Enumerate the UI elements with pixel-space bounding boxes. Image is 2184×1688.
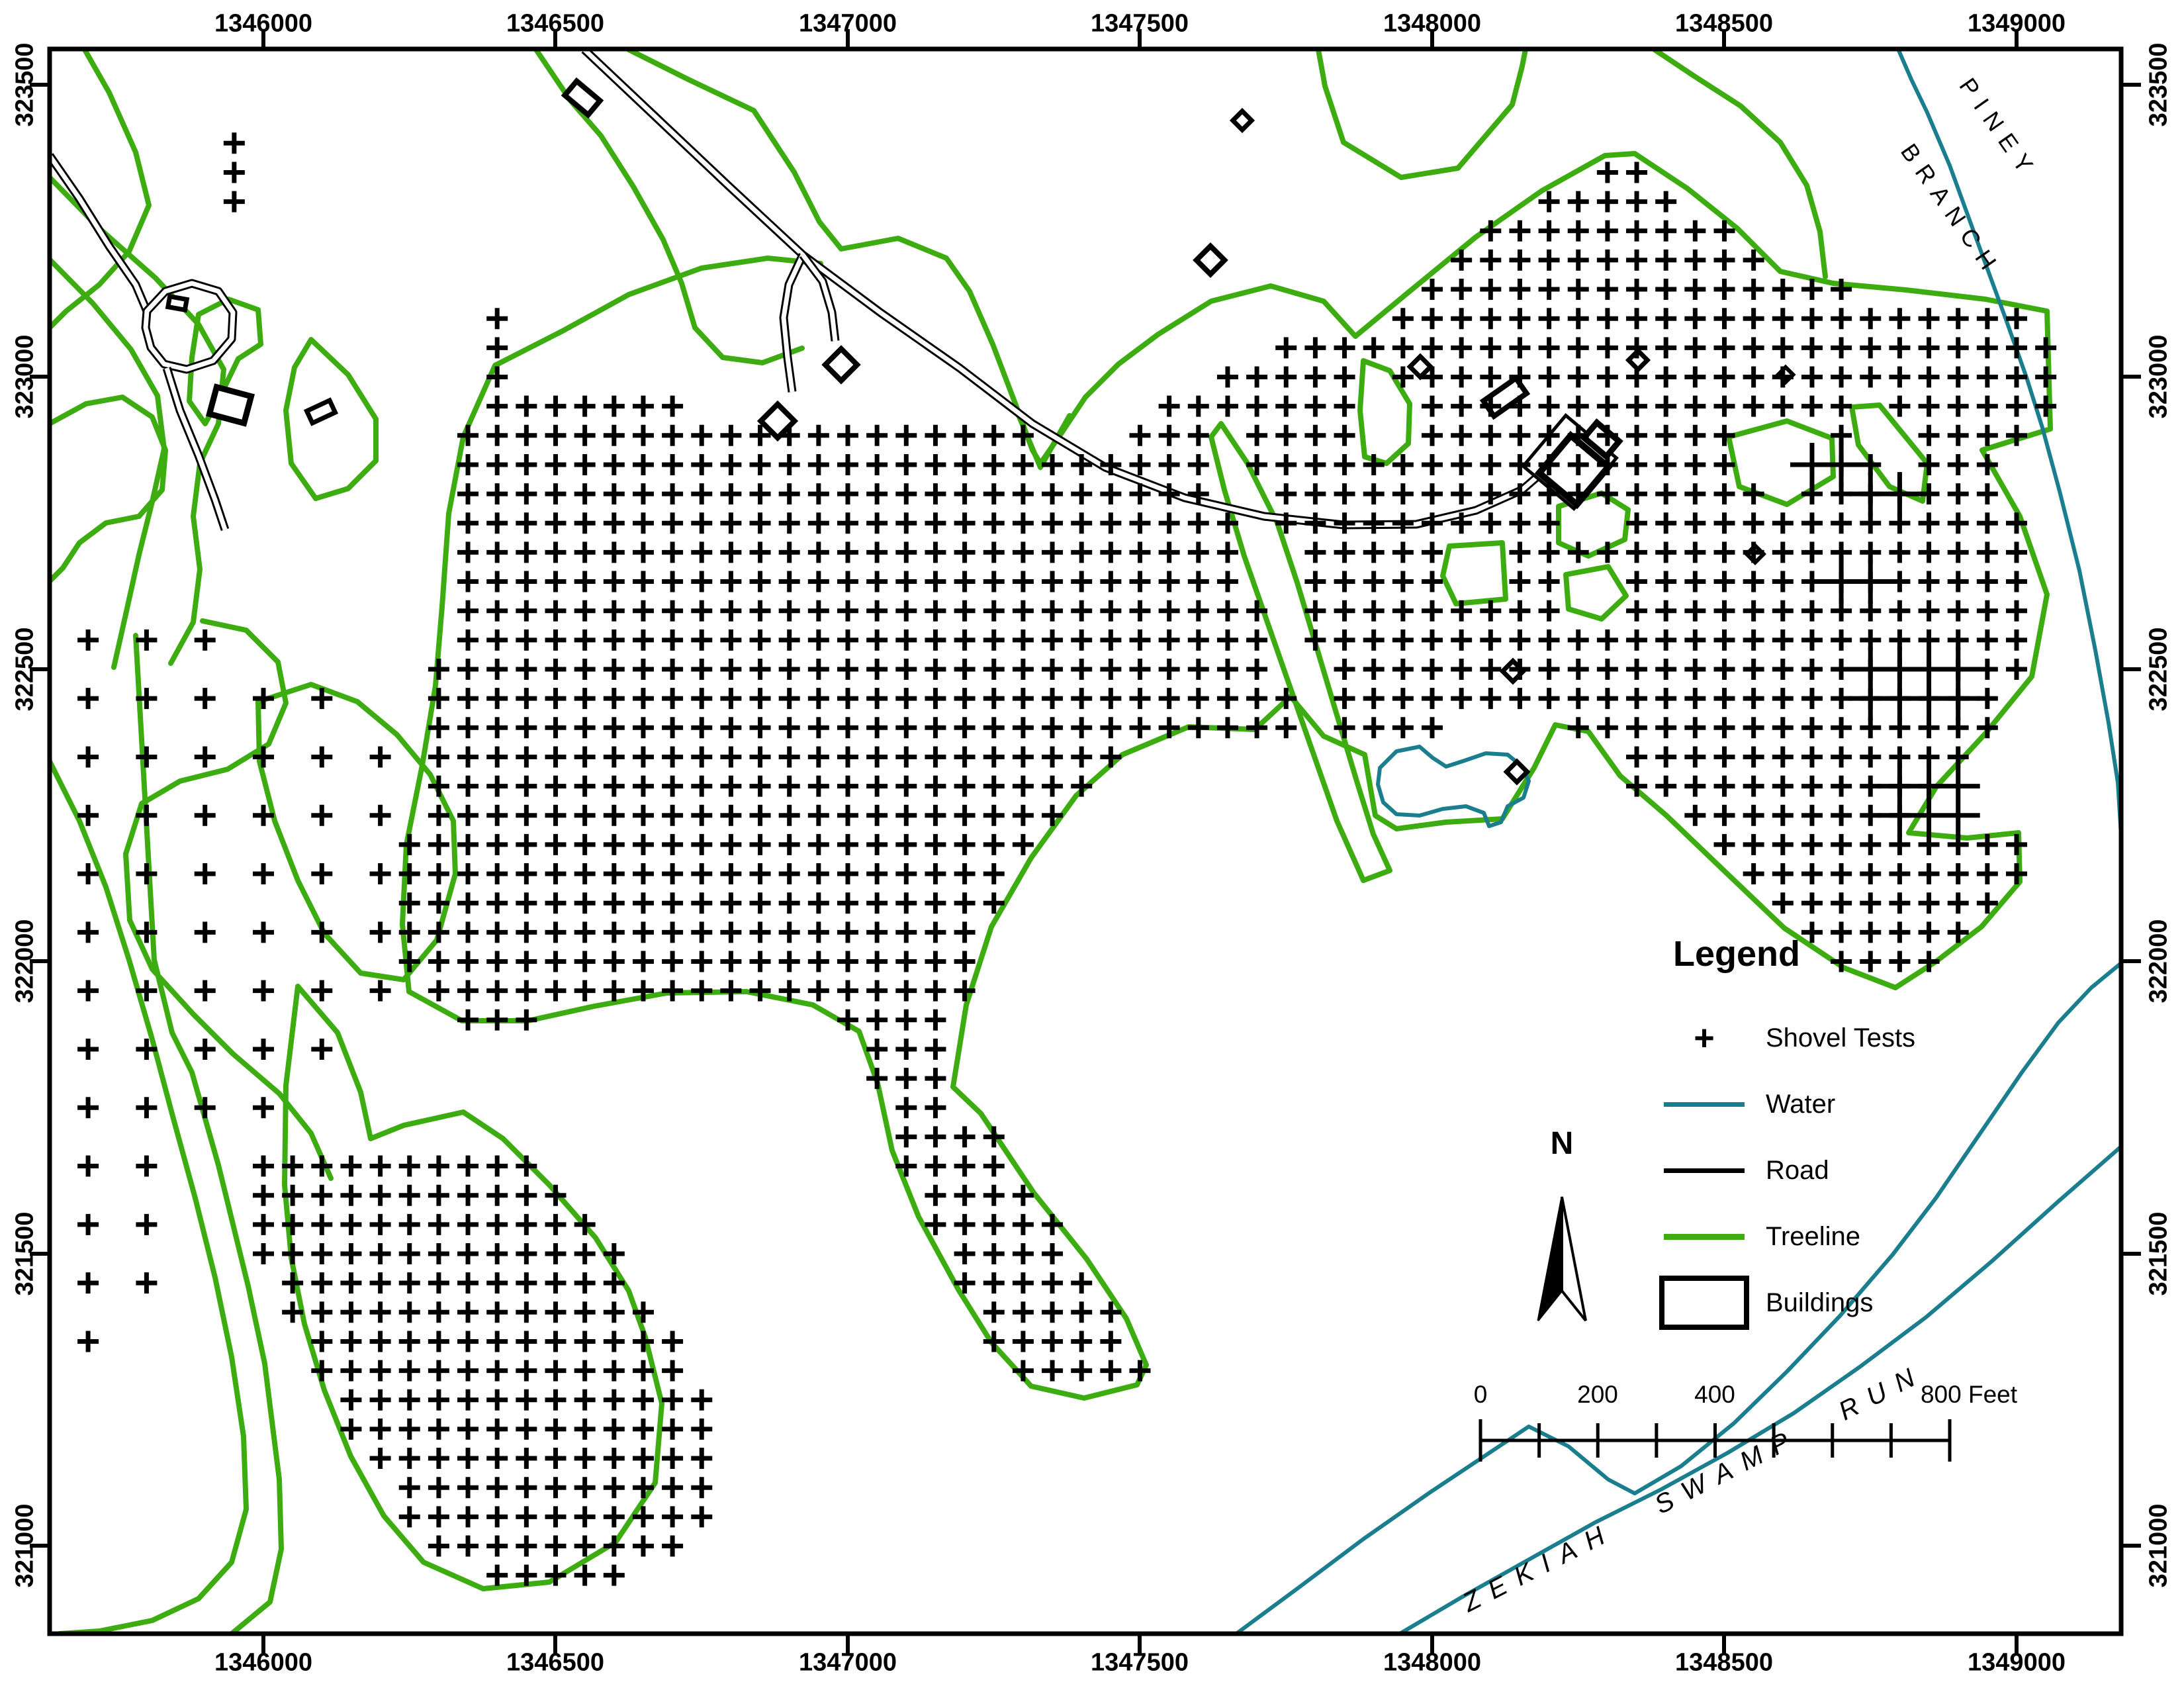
shovel-test-marks	[77, 132, 2056, 1585]
legend-item-water: Water	[1655, 1071, 2025, 1137]
axis-label-top-1348500: 1348500	[1675, 10, 1773, 38]
shovel-test-icon: +	[1694, 1020, 1715, 1056]
north-arrow-left	[1538, 1197, 1562, 1321]
building-8	[1410, 356, 1430, 377]
axis-label-top-1347500: 1347500	[1091, 10, 1189, 38]
axis-label-top-1348000: 1348000	[1383, 10, 1481, 38]
treeline-15	[136, 635, 281, 1634]
survey-map: PINEY BRANCH ZEKIAH SWAMP RUN N Legend +…	[0, 0, 2184, 1688]
treeline-8	[1852, 405, 1927, 501]
treeline-21	[1655, 50, 1825, 277]
building-6	[825, 349, 857, 381]
axis-label-left-322500: 322500	[11, 628, 40, 712]
treeline-7	[1443, 543, 1506, 604]
legend-label: Treeline	[1766, 1222, 1860, 1252]
axis-label-left-323000: 323000	[11, 335, 40, 419]
building-5	[1233, 111, 1251, 130]
axis-label-top-1346000: 1346000	[214, 10, 312, 38]
treeline-12	[285, 986, 662, 1589]
north-arrow: N	[1522, 1125, 1602, 1162]
axis-label-right-322500: 322500	[2145, 628, 2173, 712]
legend-item-treeline: Treeline	[1655, 1203, 2025, 1270]
axis-label-bottom-1349000: 1349000	[1968, 1649, 2066, 1677]
axis-label-top-1347000: 1347000	[799, 10, 897, 38]
legend-item-shovel-tests: + Shovel Tests	[1655, 1005, 2025, 1071]
building-rect-icon	[1659, 1276, 1749, 1330]
legend-label: Road	[1766, 1156, 1829, 1186]
treeline-2	[286, 340, 376, 498]
treeline-16	[50, 177, 224, 663]
axis-label-bottom-1346500: 1346500	[506, 1649, 604, 1677]
scalebar-label-800 Feet: 800 Feet	[1921, 1381, 2017, 1409]
building-2	[209, 387, 251, 424]
treeline-10	[1566, 567, 1626, 619]
axis-label-bottom-1348000: 1348000	[1383, 1649, 1481, 1677]
axis-label-bottom-1347000: 1347000	[799, 1649, 897, 1677]
axis-label-left-321000: 321000	[11, 1504, 40, 1588]
treeline-20	[50, 397, 165, 581]
legend-label: Buildings	[1766, 1288, 1873, 1318]
building-4	[1197, 246, 1224, 274]
legend-title: Legend	[1673, 933, 2025, 974]
pond	[1378, 747, 1529, 826]
legend-item-road: Road	[1655, 1137, 2025, 1203]
legend-label: Water	[1766, 1090, 1835, 1119]
axis-label-left-322000: 322000	[11, 919, 40, 1004]
legend: Legend + Shovel Tests Water Road Treelin…	[1655, 933, 2025, 1336]
axis-label-left-321500: 321500	[11, 1212, 40, 1296]
outside-mask	[0, 0, 2184, 1688]
axis-label-bottom-1347500: 1347500	[1091, 1649, 1189, 1677]
axis-label-right-323500: 323500	[2145, 43, 2173, 127]
north-arrow-right	[1562, 1197, 1586, 1321]
road-casing-3	[584, 50, 1547, 525]
axis-label-right-322000: 322000	[2145, 919, 2173, 1004]
legend-item-buildings: Buildings	[1655, 1270, 2025, 1336]
axis-label-left-323500: 323500	[11, 43, 40, 127]
water-line-icon	[1664, 1102, 1745, 1107]
scalebar-label-400: 400	[1694, 1381, 1735, 1409]
map-canvas	[0, 0, 2184, 1688]
building-1	[168, 297, 187, 310]
building-0	[565, 81, 600, 115]
north-arrow-letter: N	[1522, 1125, 1602, 1162]
axis-label-bottom-1346000: 1346000	[214, 1649, 312, 1677]
axis-label-right-321000: 321000	[2145, 1504, 2173, 1588]
road-line-icon	[1664, 1168, 1745, 1173]
axis-label-bottom-1348500: 1348500	[1675, 1649, 1773, 1677]
treeline-1	[1318, 50, 1525, 177]
road-core-3	[584, 50, 1547, 525]
axis-label-right-323000: 323000	[2145, 335, 2173, 419]
legend-label: Shovel Tests	[1766, 1023, 1915, 1053]
axis-label-top-1346500: 1346500	[506, 10, 604, 38]
building-3	[307, 400, 336, 423]
treeline-4	[1211, 424, 1390, 880]
scalebar-label-200: 200	[1577, 1381, 1618, 1409]
treeline-11	[126, 621, 331, 1178]
scale-bar	[1480, 1419, 1950, 1462]
scalebar-label-0: 0	[1474, 1381, 1488, 1409]
axis-label-top-1349000: 1349000	[1968, 10, 2066, 38]
axis-label-right-321500: 321500	[2145, 1212, 2173, 1296]
treeline-line-icon	[1664, 1234, 1745, 1240]
